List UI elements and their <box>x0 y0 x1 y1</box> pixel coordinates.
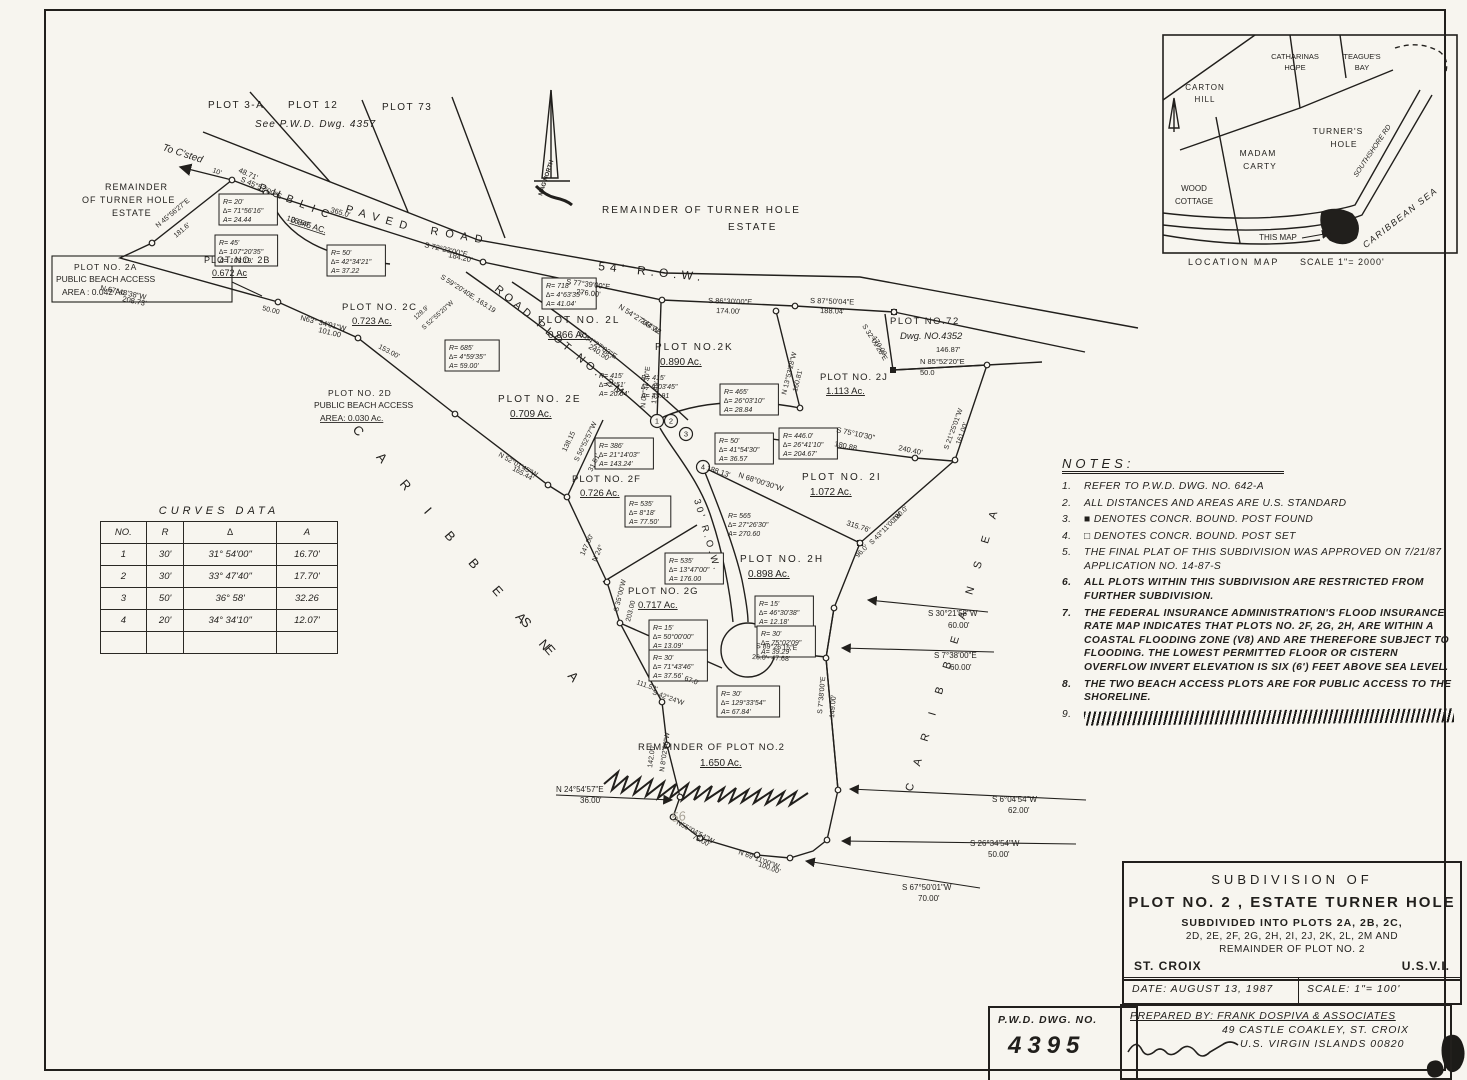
curve-row: 350'36° 58'32.26 <box>101 588 338 610</box>
note-text: □ DENOTES CONCR. BOUND. POST SET <box>1084 530 1296 544</box>
note-item-4: 4.□ DENOTES CONCR. BOUND. POST SET <box>1062 530 1454 544</box>
this-map-blob <box>1321 209 1358 243</box>
curve-box-line: R= 50' <box>719 438 740 445</box>
pwd-number: 4395 <box>1008 1032 1128 1060</box>
map-label-rem-plot2: REMAINDER OF PLOT NO.2 <box>638 742 785 753</box>
note-text: THE FEDERAL INSURANCE ADMINISTRATION'S F… <box>1084 607 1454 675</box>
curve-cell <box>146 632 184 654</box>
map-label-d-14900: 149.00' <box>829 695 838 718</box>
curve-box-line: R= 20' <box>223 199 244 206</box>
note-item-8: 8.THE TWO BEACH ACCESS PLOTS ARE FOR PUB… <box>1062 678 1454 705</box>
note-item-2: 2.ALL DISTANCES AND AREAS ARE U.S. STAND… <box>1062 497 1454 511</box>
map-label-loc-teagues-1: TEAGUE'S <box>1343 52 1380 61</box>
date-scale-strip: DATE: AUGUST 13, 1987 SCALE: 1"= 100' <box>1122 977 1462 1005</box>
curve-box-line: R= 15' <box>653 625 674 632</box>
curves-header-a: A <box>276 522 337 544</box>
curve-cell: 4 <box>101 610 147 632</box>
curve-box-line: A= 36.57 <box>718 456 748 463</box>
notes-panel: NOTES: 1.REFER TO P.W.D. DWG. NO. 642-A2… <box>1062 455 1454 727</box>
curve-box-line: ∆= 4°59'35" <box>449 353 486 361</box>
prepared-by-box: PREPARED BY: FRANK DOSPIVA & ASSOCIATES … <box>1120 1004 1452 1080</box>
note-number: 9. <box>1062 708 1084 722</box>
curve-box-line: ∆= 41°54'30" <box>719 446 760 454</box>
map-label-d-6200: 62.00' <box>1008 806 1030 815</box>
note-number: 3. <box>1062 513 1084 527</box>
curve-box-line: R= 30' <box>653 655 674 662</box>
svg-text:2: 2 <box>669 417 673 426</box>
curves-data-table: NO.R∆A 130'31° 54'00"16.70'230'33° 47'40… <box>100 521 338 654</box>
map-label-rem-turner-w3: ESTATE <box>112 208 152 218</box>
map-label-area-2g: 0.717 Ac. <box>638 600 678 611</box>
map-label-plot-72: PLOT NO.72 <box>890 316 960 327</box>
map-label-plot-2b: PLOT NO. 2B <box>204 255 270 265</box>
map-label-area-2c: 0.723 Ac. <box>352 316 392 327</box>
curve-cell: 33° 47'40" <box>184 566 276 588</box>
map-label-brg-s8750: S 87°50'04"E <box>810 296 855 307</box>
title-line-2: PLOT NO. 2 , ESTATE TURNER HOLE <box>1124 894 1460 911</box>
curve-box-line: ∆= 71°56'16" <box>223 207 264 215</box>
map-label-pencil-56: 56 <box>670 808 687 825</box>
map-label-d-5000: 50.00' <box>988 850 1010 859</box>
curve-box-line: R= 535' <box>629 501 654 508</box>
curve-box-line: R= 465' <box>724 389 749 396</box>
title-line-4: 2D, 2E, 2F, 2G, 2H, 2I, 2J, 2K, 2L, 2M A… <box>1124 931 1460 942</box>
curve-box-line: A= 24.44 <box>222 217 251 224</box>
map-label-plot-2a-2: PUBLIC BEACH ACCESS <box>56 274 156 284</box>
notes-title: NOTES: <box>1062 456 1284 474</box>
curve-box-1: R= 20'∆= 71°56'16"A= 24.44 <box>219 194 277 225</box>
map-label-loc-wood-1: WOOD <box>1181 184 1207 193</box>
map-label-brg-s738b: S 7°38'00"E <box>816 676 827 714</box>
map-label-d-16081: 160.81' <box>792 369 804 393</box>
map-label-plot-2j: PLOT NO. 2J <box>820 372 888 383</box>
title-line-5: REMAINDER OF PLOT NO. 2 <box>1124 944 1460 955</box>
curve-box-9: R= 50'∆= 41°54'30"A= 36.57 <box>715 433 773 464</box>
map-label-brg-n6800: N 68°00'30"W <box>737 470 785 493</box>
svg-text:4: 4 <box>701 463 705 472</box>
curve-box-line: A= 13.09' <box>652 643 683 650</box>
map-label-plot-12: PLOT 12 <box>288 100 338 111</box>
curve-box-line: A= 12.18' <box>758 619 789 626</box>
note-number: 1. <box>1062 480 1084 494</box>
map-label-brg-s8630: S 86°30'00"E <box>708 296 753 307</box>
map-label-plot-2d-2: PUBLIC BEACH ACCESS <box>314 400 414 410</box>
curve-box-line: A= 176.00 <box>668 576 701 583</box>
curve-box-line: ∆= 26°03'10" <box>724 397 765 405</box>
curve-box-line: ∆= 13°47'00" <box>669 566 710 574</box>
territory-label: U.S.V.I. <box>1402 959 1450 973</box>
note-item-1: 1.REFER TO P.W.D. DWG. NO. 642-A <box>1062 480 1454 494</box>
curves-header-r: R <box>146 522 184 544</box>
map-label-plot-73: PLOT 73 <box>382 102 432 113</box>
title-line-1: SUBDIVISION OF <box>1124 872 1460 887</box>
map-label-area-2e: 0.709 Ac. <box>510 409 552 420</box>
svg-text:1: 1 <box>655 417 659 426</box>
curve-box-17: R= 15'∆= 46°30'38"A= 12.18' <box>755 596 813 627</box>
curves-data-title: CURVES DATA <box>100 505 338 517</box>
curve-box-line: A= 270.60 <box>727 531 760 538</box>
map-label-loc-catharinas-2: HOPE <box>1284 63 1305 72</box>
map-label-loc-turners-2: HOLE <box>1330 139 1357 149</box>
prepared-by-line-1: PREPARED BY: FRANK DOSPIVA & ASSOCIATES <box>1130 1010 1396 1022</box>
curve-row <box>101 632 338 654</box>
title-block: SUBDIVISION OF PLOT NO. 2 , ESTATE TURNE… <box>1122 861 1462 981</box>
curves-data-panel: CURVES DATA NO.R∆A 130'31° 54'00"16.70'2… <box>100 505 338 654</box>
curve-cell: 30' <box>146 544 184 566</box>
map-label-rem-turner-c1: REMAINDER OF TURNER HOLE <box>602 205 801 216</box>
island-label: ST. CROIX <box>1134 959 1202 973</box>
map-label-plot-2c: PLOT NO. 2C <box>342 302 417 313</box>
curve-cell <box>101 632 147 654</box>
curve-box-15: R= 15'∆= 50°00'00"A= 13.09' <box>649 620 707 651</box>
notes-list: 1.REFER TO P.W.D. DWG. NO. 642-A2.ALL DI… <box>1062 480 1454 724</box>
pwd-box: P.W.D. DWG. NO. 4395 <box>988 1006 1138 1080</box>
map-label-plot-2l: PLOT NO. 2L <box>538 315 620 326</box>
curve-box-11: R= 386'∆= 21°14'03"A= 143.24' <box>595 438 653 469</box>
curve-cell: 31° 54'00" <box>184 544 276 566</box>
curve-cell: 20' <box>146 610 184 632</box>
junction-number-2: 2 <box>665 415 678 428</box>
curve-cell: 16.70' <box>276 544 337 566</box>
curve-box-line: ∆= 46°30'38" <box>759 609 800 617</box>
map-label-d-7000: 70.00' <box>918 894 940 903</box>
note-text: ■ DENOTES CONCR. BOUND. POST FOUND <box>1084 513 1313 527</box>
map-label-brg-n8552: N 85°52'20"E <box>920 357 965 366</box>
curve-cell <box>276 632 337 654</box>
location-map <box>1163 35 1457 253</box>
curve-box-line: A= 37.56' <box>652 673 683 680</box>
remainder-scribble <box>604 772 808 805</box>
curve-box-line: R= 50' <box>331 250 352 257</box>
note-number: 2. <box>1062 497 1084 511</box>
to-csted-arrow <box>180 167 232 180</box>
note-text: ALL PLOTS WITHIN THIS SUBDIVISION ARE RE… <box>1084 576 1454 603</box>
note-item-6: 6.ALL PLOTS WITHIN THIS SUBDIVISION ARE … <box>1062 576 1454 603</box>
map-label-area-2j: 1.113 Ac. <box>826 386 865 397</box>
curve-box-18: R= 30'∆= 75°02'09"A= 39.29' <box>757 626 815 657</box>
curve-cell: 17.70' <box>276 566 337 588</box>
map-label-loc-title: LOCATION MAP <box>1188 257 1279 267</box>
plat-sheet: R= 20'∆= 71°56'16"A= 24.44R= 45'∆= 107°2… <box>0 0 1467 1080</box>
curve-box-line: ∆= 27°26'30" <box>728 521 769 529</box>
map-label-plot-2h: PLOT NO. 2H <box>740 554 824 565</box>
note-text: THE TWO BEACH ACCESS PLOTS ARE FOR PUBLI… <box>1084 678 1454 705</box>
curve-box-line: ∆= 26°41'10" <box>783 441 824 449</box>
curve-box-line: ∆= 50°00'00" <box>653 633 694 641</box>
map-label-plot-2e: PLOT NO. 2E <box>498 394 582 405</box>
curve-box-line: R= 30' <box>761 631 782 638</box>
map-label-plot-2d-3: AREA: 0.030 Ac. <box>320 413 383 423</box>
map-label-d-31576: 315.76' <box>845 518 872 534</box>
title-line-3: SUBDIVIDED INTO PLOTS 2A, 2B, 2C, <box>1124 917 1460 929</box>
map-label-rem-turner-w2: OF TURNER HOLE <box>82 195 175 205</box>
curve-cell: 34° 34'10" <box>184 610 276 632</box>
date-label: DATE: AUGUST 13, 1987 <box>1124 978 1299 1003</box>
map-label-loc-sea: CARIBBEAN SEA <box>1361 185 1440 250</box>
map-label-loc-carton-1: CARTON <box>1185 83 1225 92</box>
curve-cell: 36° 58' <box>184 588 276 610</box>
note-number: 7. <box>1062 607 1084 621</box>
map-label-brg-s4224: S 42°24'W <box>651 688 685 707</box>
note-number: 5. <box>1062 546 1084 560</box>
map-label-area-2h: 0.898 Ac. <box>748 569 790 580</box>
curves-header-: ∆ <box>184 522 276 544</box>
curve-box-line: ∆= 71°43'46" <box>653 663 694 671</box>
map-label-d-17149: 171.49' <box>651 381 661 404</box>
map-label-brg-s6750: S 67°50'01"W <box>902 883 952 892</box>
map-label-area-rem: 1.650 Ac. <box>700 758 742 769</box>
map-label-brg-s3500: S 35°00'W <box>612 578 628 612</box>
note-redacted-scribble <box>1084 708 1454 725</box>
map-label-plot-3a: PLOT 3-A <box>208 100 264 111</box>
svg-text:3: 3 <box>684 430 688 439</box>
map-label-brg-s2634: S 26°34'54"W <box>970 839 1020 848</box>
curve-cell <box>184 632 276 654</box>
prepared-by-line-2: 49 CASTLE COAKLEY, ST. CROIX <box>1130 1024 1442 1036</box>
note-text: ALL DISTANCES AND AREAS ARE U.S. STANDAR… <box>1084 497 1346 511</box>
pwd-label: P.W.D. DWG. NO. <box>998 1014 1128 1026</box>
map-label-d-18420: 184.20' <box>448 250 474 264</box>
map-label-plot-2f: PLOT NO. 2F <box>572 474 641 485</box>
map-label-row-54: 54' R.O.W. <box>598 259 707 284</box>
curve-box-16: R= 30'∆= 71°43'46"A= 37.56' <box>649 650 707 681</box>
map-label-to-csted: To C'sted <box>161 142 204 165</box>
map-label-d-17400: 174.00' <box>716 306 741 316</box>
map-label-area-2k: 0.890 Ac. <box>660 357 702 368</box>
curves-header-no: NO. <box>101 522 147 544</box>
junction-numbers: 1234 <box>651 415 710 474</box>
curve-box-line: R= 446.0' <box>783 433 814 440</box>
note-item-7: 7.THE FEDERAL INSURANCE ADMINISTRATION'S… <box>1062 607 1454 675</box>
map-label-plot-2k: PLOT NO.2K <box>655 342 734 353</box>
curve-box-8: R= 465'∆= 26°03'10"A= 28.84 <box>720 384 778 415</box>
curve-cell: 3 <box>101 588 147 610</box>
curve-row: 130'31° 54'00"16.70' <box>101 544 338 566</box>
note-number: 4. <box>1062 530 1084 544</box>
curve-box-line: ∆= 21°14'03" <box>599 451 640 459</box>
curve-box-line: A= 77.50' <box>628 519 659 526</box>
location-north-arrow-icon <box>1169 98 1179 132</box>
road-upper-edge <box>203 132 1138 328</box>
map-label-rem-turner-c2: ESTATE <box>728 222 777 233</box>
curve-cell: 12.07' <box>276 610 337 632</box>
map-label-area-2i: 1.072 Ac. <box>810 487 852 498</box>
curve-box-line: ∆= 8°18' <box>629 509 656 517</box>
map-label-sea-left-2: S E A <box>518 614 590 694</box>
curve-cell: 1 <box>101 544 147 566</box>
curve-box-10: R= 446.0'∆= 26°41'10"A= 204.67' <box>779 428 837 459</box>
junction-number-1: 1 <box>651 415 664 428</box>
scale-label: SCALE: 1"= 100' <box>1299 978 1408 1003</box>
map-label-loc-teagues-2: BAY <box>1355 63 1369 72</box>
map-label-loc-turners-1: TURNER'S <box>1313 126 1364 136</box>
map-label-d-2647: 26.0'- 47.68' <box>752 654 790 663</box>
map-label-brg-s5255: S 52°55'20"W <box>420 298 456 331</box>
note-text: REFER TO P.W.D. DWG. NO. 642-A <box>1084 480 1264 494</box>
curve-row: 420'34° 34'10"12.07' <box>101 610 338 632</box>
curve-box-line: R= 30' <box>721 691 742 698</box>
curve-box-line: R= 535' <box>669 558 694 565</box>
curve-box-line: A= 204.67' <box>782 451 817 458</box>
curve-box-line: A= 59.00' <box>448 363 479 370</box>
curve-box-13: R= 565∆= 27°26'30"A= 270.60 <box>727 513 769 538</box>
curve-box-12: R= 535'∆= 8°18'A= 77.50' <box>625 496 671 527</box>
map-label-d-960: 96.0' <box>854 544 870 560</box>
map-label-dwg-4352: Dwg. NO.4352 <box>900 331 963 342</box>
map-label-d-15300: 153.00' <box>377 344 400 361</box>
curve-box-line: ∆= 129°33'54" <box>721 699 766 707</box>
map-label-plot-2g: PLOT NO. 2G <box>628 586 698 597</box>
junction-number-3: 3 <box>680 428 693 441</box>
map-label-area-2b: 0.672 Ac <box>212 268 248 278</box>
map-label-loc-madam-2: CARTY <box>1243 161 1277 171</box>
map-label-rem-turner-w1: REMAINDER <box>105 182 168 192</box>
curve-cell: 32.26 <box>276 588 337 610</box>
map-label-d-5000w: 50.00 <box>262 305 281 316</box>
curve-box-3: R= 50'∆= 42°34'21"A= 37.22 <box>327 245 385 276</box>
map-label-area-2l: 0.866 Ac. <box>548 330 590 341</box>
map-label-loc-madam-1: MADAM <box>1240 148 1277 158</box>
curve-box-line: A= 67.84' <box>720 709 751 716</box>
map-label-d-18813: 188.13' <box>705 463 732 479</box>
prepared-by-line-3: U.S. VIRGIN ISLANDS 00820 <box>1130 1038 1442 1050</box>
curve-cell: 50' <box>146 588 184 610</box>
curve-box-line: ∆= 42°34'21" <box>331 258 372 266</box>
note-number: 8. <box>1062 678 1084 692</box>
map-label-d-20300: 203.00 <box>625 600 637 623</box>
map-label-see-dwg-4357: See P.W.D. Dwg. 4357 <box>255 119 376 130</box>
curve-cell: 2 <box>101 566 147 588</box>
map-label-loc-this-map: THIS MAP <box>1259 233 1297 242</box>
map-label-loc-carton-2: HILL <box>1195 95 1216 104</box>
map-label-d-18804: 188.04' <box>820 306 845 316</box>
note-item-5: 5.THE FINAL PLAT OF THIS SUBDIVISION WAS… <box>1062 546 1454 573</box>
map-label-d-3600: 36.00' <box>580 796 602 805</box>
curve-box-line: R= 15' <box>759 601 780 608</box>
map-label-sea-right: C A R I B B E A N S E A <box>903 502 1002 793</box>
map-label-d-13815: 138.15 <box>562 430 578 452</box>
curve-box-5: R= 685'∆= 4°59'35"A= 59.00' <box>445 340 499 371</box>
curve-box-line: R= 45' <box>219 240 240 247</box>
note-item-3: 3.■ DENOTES CONCR. BOUND. POST FOUND <box>1062 513 1454 527</box>
map-label-plot-2a-1: PLOT NO. 2A <box>74 262 137 272</box>
curve-box-line: R= 386' <box>599 443 624 450</box>
curve-box-19: R= 30'∆= 129°33'54"A= 67.84' <box>717 686 780 717</box>
map-label-loc-catharinas-1: CATHARINAS <box>1271 52 1319 61</box>
map-label-plot-2d-1: PLOT NO. 2D <box>328 388 392 398</box>
map-label-loc-wood-2: COTTAGE <box>1175 197 1213 206</box>
curve-box-line: R= 685' <box>449 345 474 352</box>
map-label-loc-scale: SCALE 1"= 2000' <box>1300 257 1385 267</box>
note-text: THE FINAL PLAT OF THIS SUBDIVISION WAS A… <box>1084 546 1454 573</box>
map-label-brg-n2454: N 24°54'57"E <box>556 785 604 794</box>
map-label-d-500: 50.0 <box>920 368 935 377</box>
note-number: 6. <box>1062 576 1084 590</box>
map-label-area-2f: 0.726 Ac. <box>580 488 620 499</box>
map-label-plot-2i: PLOT NO. 2I <box>802 472 882 483</box>
curve-row: 230'33° 47'40"17.70' <box>101 566 338 588</box>
curve-box-line: A= 28.84 <box>723 407 752 414</box>
curve-box-line: R= 565 <box>728 513 751 520</box>
note-item-9: 9. <box>1062 708 1454 724</box>
map-label-d-14687: 146.87' <box>936 345 961 354</box>
curve-box-line: A= 37.22 <box>330 268 359 275</box>
map-label-d-24040: 240.40' <box>898 443 924 457</box>
curve-box-line: A= 41.04' <box>545 301 576 308</box>
curve-cell: 30' <box>146 566 184 588</box>
curve-box-line: A= 143.24' <box>598 461 633 468</box>
map-label-brg-s604: S 6°04'54"W <box>992 795 1037 804</box>
